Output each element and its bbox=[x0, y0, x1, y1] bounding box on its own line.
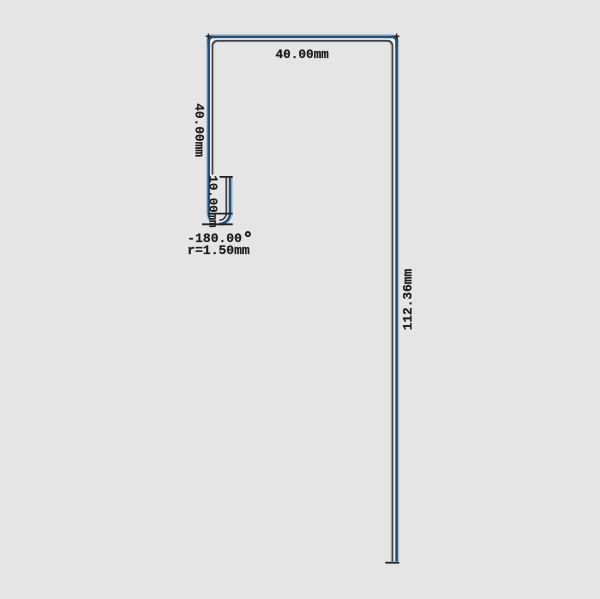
svg-text:40.00mm: 40.00mm bbox=[191, 103, 206, 157]
svg-text:40.00mm: 40.00mm bbox=[276, 47, 330, 62]
svg-text:10.00mm: 10.00mm bbox=[206, 175, 220, 227]
svg-text:112.36mm: 112.36mm bbox=[401, 269, 416, 331]
svg-text:r=1.50mm: r=1.50mm bbox=[187, 243, 250, 258]
